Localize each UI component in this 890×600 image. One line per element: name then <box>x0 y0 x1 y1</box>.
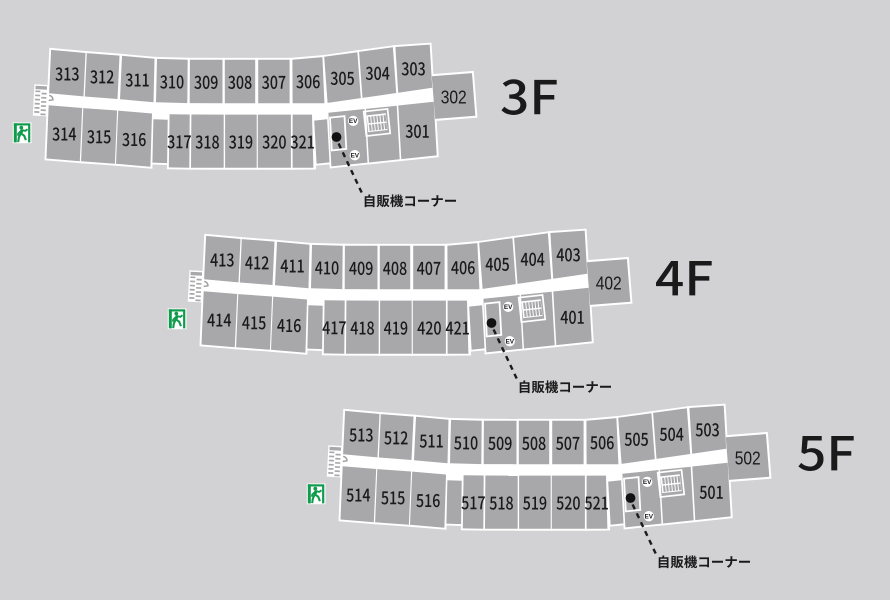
svg-text:502: 502 <box>735 449 761 469</box>
svg-text:EV: EV <box>349 118 358 125</box>
svg-text:EV: EV <box>645 514 654 521</box>
svg-text:EV: EV <box>504 304 513 311</box>
svg-text:EV: EV <box>506 339 515 346</box>
svg-text:EV: EV <box>643 479 652 486</box>
svg-text:302: 302 <box>441 88 467 108</box>
svg-text:402: 402 <box>596 274 622 294</box>
svg-text:EV: EV <box>351 153 360 160</box>
